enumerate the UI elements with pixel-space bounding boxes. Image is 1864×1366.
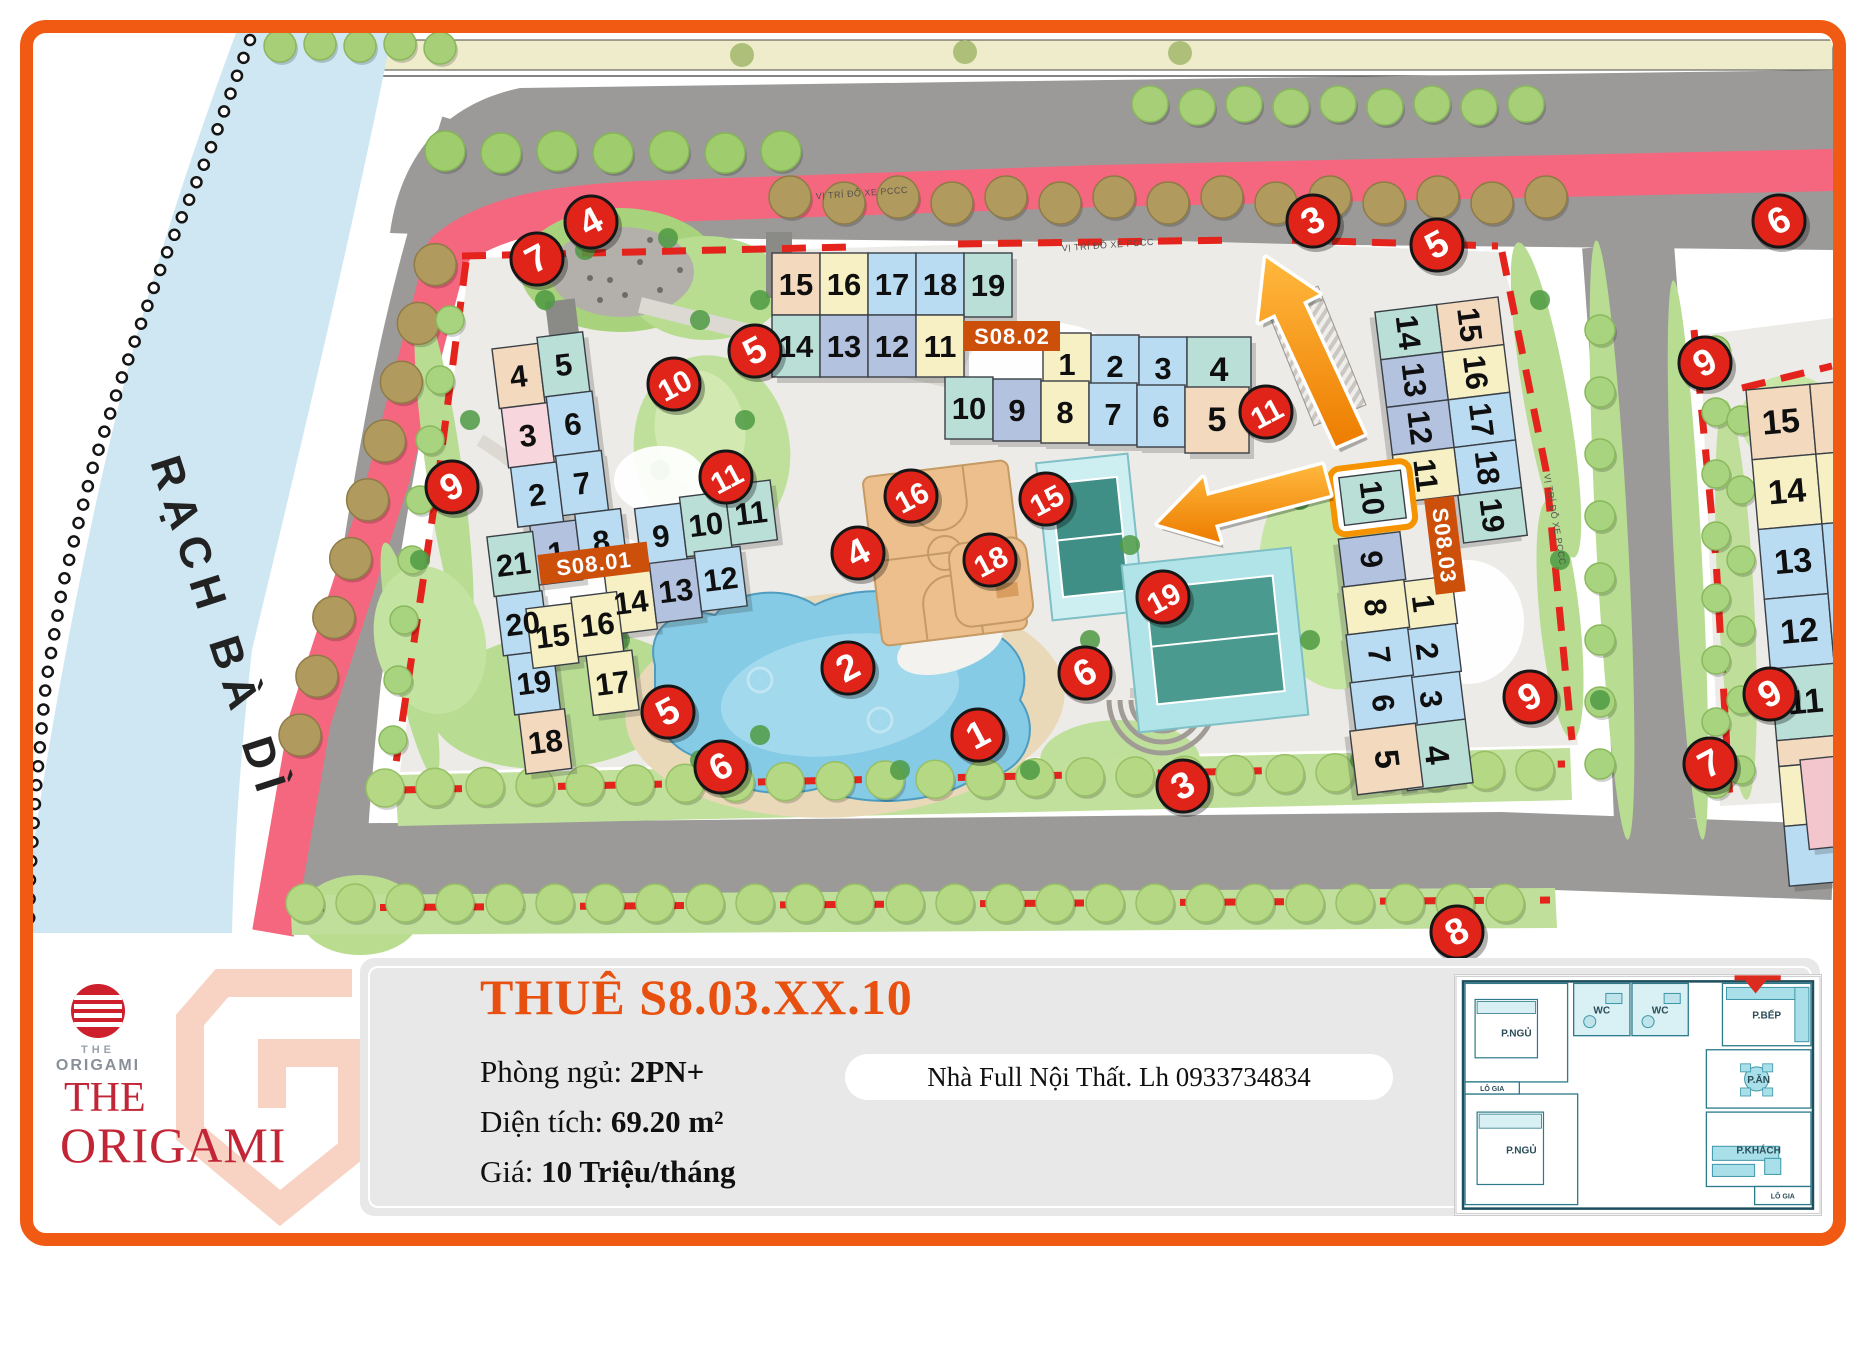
unit-number: 19 bbox=[1473, 496, 1512, 534]
listing-title: THUÊ S8.03.XX.10 bbox=[480, 968, 913, 1026]
unit-number: 16 bbox=[827, 267, 861, 302]
unit-number: 11 bbox=[1406, 457, 1445, 494]
info-section: THE ORIGAMI THE ORIGAMI THUÊ S8.03.XX.10… bbox=[0, 946, 1864, 1246]
unit-number: 17 bbox=[1462, 401, 1501, 439]
rooms-line: Phòng ngủ: 2PN+ bbox=[480, 1054, 704, 1090]
unit-number: 1 bbox=[1058, 347, 1075, 382]
unit-number: 13 bbox=[1773, 541, 1814, 582]
unit-number: 14 bbox=[612, 583, 651, 622]
floorplan-room-label: WC bbox=[1593, 1006, 1610, 1017]
floorplan-room-label: P.ĂN bbox=[1747, 1073, 1770, 1086]
rooms-label: Phòng ngủ: bbox=[480, 1054, 630, 1089]
unit-number: 15 bbox=[533, 617, 571, 656]
unit-number: 10 bbox=[952, 391, 986, 426]
unit-number: 14 bbox=[1389, 313, 1428, 352]
building-cell bbox=[1816, 452, 1848, 524]
unit-number: 3 bbox=[1154, 351, 1171, 386]
unit-number: 18 bbox=[923, 267, 957, 302]
contact-note: Nhà Full Nội Thất. Lh 0933734834 bbox=[845, 1054, 1393, 1100]
unit-number: 15 bbox=[779, 267, 813, 302]
logo-the-small: THE bbox=[42, 1044, 154, 1056]
building-corner-partial bbox=[1800, 754, 1864, 856]
unit-number: 6 bbox=[1152, 399, 1169, 434]
price-label: Giá: bbox=[480, 1154, 541, 1189]
unit-number: 11 bbox=[924, 329, 957, 364]
unit-number: 12 bbox=[875, 329, 909, 364]
unit-number: 13 bbox=[827, 329, 861, 364]
area-line: Diện tích: 69.20 m² bbox=[480, 1104, 723, 1140]
building-cell bbox=[1834, 661, 1864, 735]
logo-origami-small: ORIGAMI bbox=[42, 1057, 154, 1075]
unit-number: 16 bbox=[1456, 353, 1495, 391]
unit-number: 13 bbox=[657, 571, 695, 610]
unit-number: 8 bbox=[1056, 395, 1073, 430]
unit-number: 12 bbox=[1400, 408, 1439, 446]
unit-number: 7 bbox=[1104, 397, 1121, 432]
unit-number: 2 bbox=[1106, 349, 1123, 384]
origami-circle-icon bbox=[69, 982, 127, 1040]
logo-origami: ORIGAMI bbox=[60, 1116, 286, 1174]
building-label: S08.02 bbox=[974, 324, 1050, 349]
price-line: Giá: 10 Triệu/tháng bbox=[480, 1154, 735, 1190]
unit-number: 13 bbox=[1395, 361, 1434, 399]
brand-logo: THE ORIGAMI THE ORIGAMI bbox=[42, 958, 372, 1243]
unit-number: 10 bbox=[1353, 479, 1392, 517]
floorplan-room-label: LÔ GIA bbox=[1771, 1192, 1795, 1201]
unit-number: 18 bbox=[1468, 448, 1507, 486]
floorplan-room-label: P.KHÁCH bbox=[1736, 1143, 1780, 1156]
building-cell bbox=[1800, 754, 1864, 849]
unit-number: 17 bbox=[593, 664, 631, 703]
unit-number: 17 bbox=[875, 267, 909, 302]
unit-number: 9 bbox=[1008, 393, 1025, 428]
unit-number: 19 bbox=[515, 663, 553, 702]
listing-image: 453627189101114131221201918151617S08.011… bbox=[0, 0, 1864, 1366]
floorplan-room-label: P.NGỦ bbox=[1506, 1143, 1537, 1156]
price-value: 10 Triệu/tháng bbox=[541, 1154, 735, 1189]
unit-number: 5 bbox=[1208, 401, 1227, 439]
floorplan-room-label: WC bbox=[1652, 1006, 1669, 1017]
rooms-value: 2PN+ bbox=[630, 1054, 705, 1089]
building-cell bbox=[1810, 382, 1842, 454]
floorplan-room-label: LÔ GIA bbox=[1480, 1084, 1504, 1093]
unit-number: 19 bbox=[971, 268, 1005, 303]
unit-number: 12 bbox=[1779, 611, 1820, 652]
unit-number: 14 bbox=[1767, 471, 1808, 512]
logo-the: THE bbox=[64, 1074, 146, 1122]
floorplan-thumbnail: P.NGỦP.NGỦWCWCP.BẾPP.ĂNP.KHÁCHLÔ GIALÔ G… bbox=[1454, 974, 1822, 1216]
area-value: 69.20 m² bbox=[611, 1104, 724, 1139]
unit-number: 10 bbox=[687, 505, 725, 544]
unit-number: 18 bbox=[526, 722, 564, 761]
unit-number: 4 bbox=[1210, 351, 1229, 389]
area-label: Diện tích: bbox=[480, 1104, 611, 1139]
unit-number: 16 bbox=[578, 605, 616, 644]
unit-number: 15 bbox=[1760, 402, 1801, 443]
floorplan-room-label: P.NGỦ bbox=[1501, 1027, 1532, 1040]
unit-number: 15 bbox=[1450, 305, 1489, 343]
unit-number: 12 bbox=[702, 560, 740, 599]
floorplan-room-label: P.BẾP bbox=[1752, 1009, 1781, 1022]
unit-number: 21 bbox=[494, 545, 532, 584]
listing-panel: THUÊ S8.03.XX.10 Phòng ngủ: 2PN+ Diện tí… bbox=[360, 958, 1820, 1216]
